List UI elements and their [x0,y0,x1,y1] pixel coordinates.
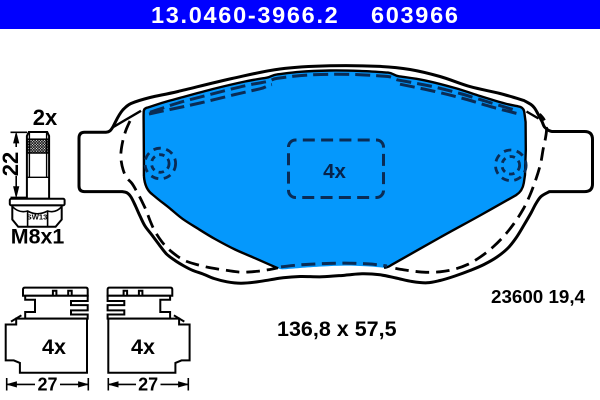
svg-text:2x: 2x [33,105,58,130]
svg-text:13.0460-3966.2: 13.0460-3966.2 [151,2,339,28]
svg-text:22: 22 [0,152,23,176]
svg-text:4x: 4x [131,335,155,359]
svg-text:27: 27 [138,374,158,394]
svg-text:603966: 603966 [371,2,460,28]
svg-text:23600 19,4: 23600 19,4 [491,286,586,307]
svg-text:M8x1: M8x1 [11,225,65,249]
svg-text:27: 27 [37,374,57,394]
svg-text:SW13: SW13 [27,213,48,222]
svg-text:136,8 x 57,5: 136,8 x 57,5 [277,317,397,341]
svg-text:4x: 4x [42,335,66,359]
svg-text:4x: 4x [323,160,346,183]
